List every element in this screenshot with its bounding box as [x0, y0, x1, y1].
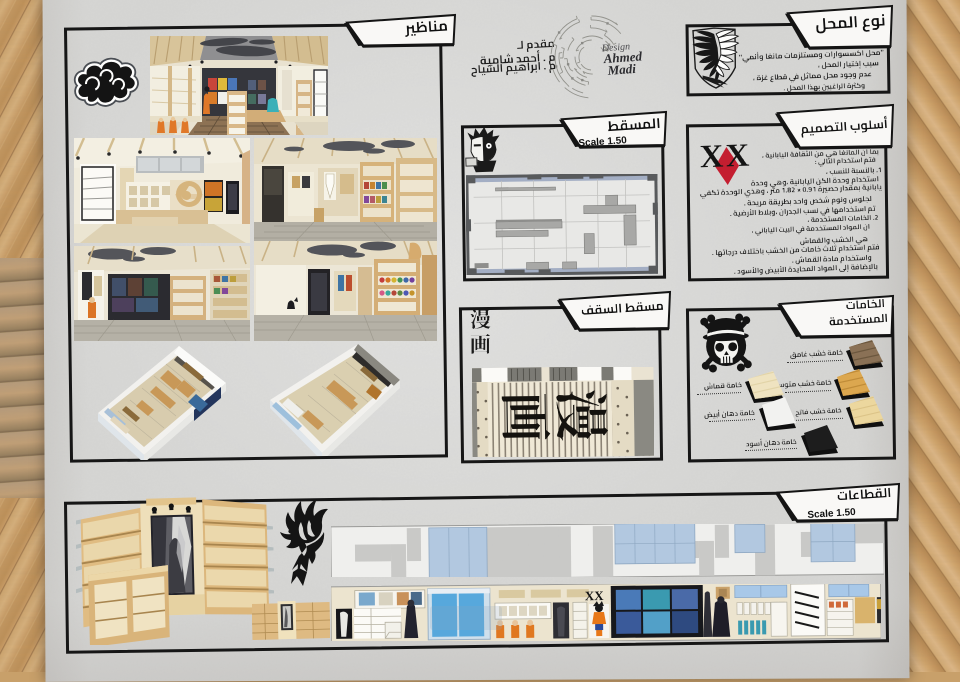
- svg-text:Madi: Madi: [606, 61, 637, 78]
- svg-text:XX: XX: [585, 588, 605, 603]
